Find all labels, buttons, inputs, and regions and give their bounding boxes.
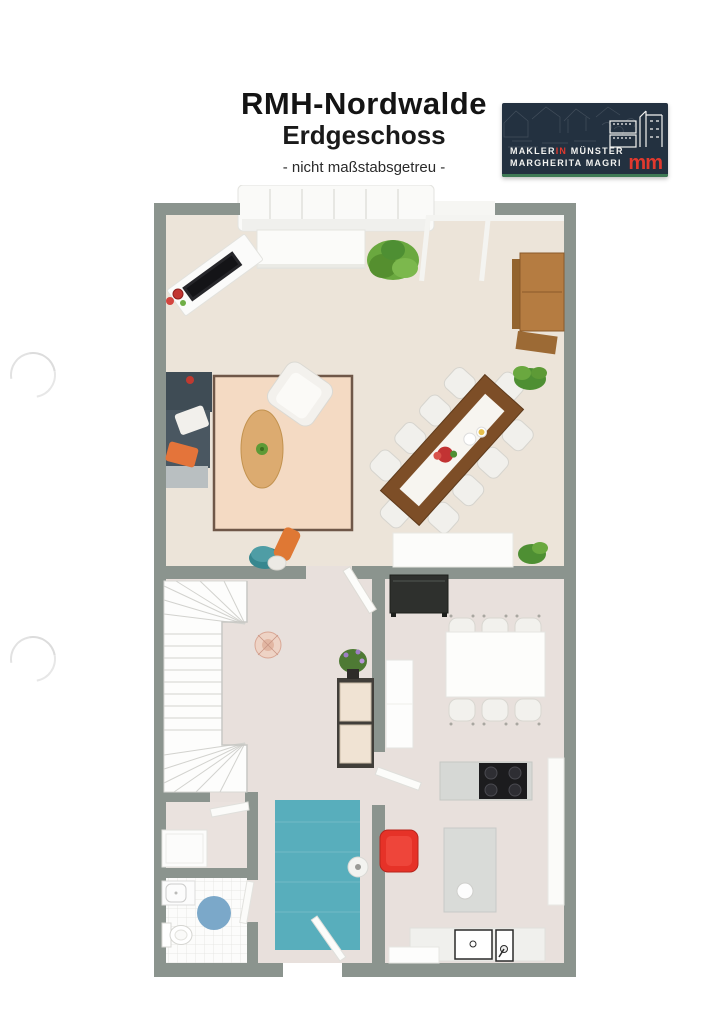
logo-line2: MARGHERITA MAGRI (510, 157, 624, 169)
title-block: RMH-Nordwalde Erdgeschoss - nicht maßsta… (214, 88, 514, 176)
island-sink (457, 883, 473, 899)
bench (389, 947, 439, 963)
page-subtitle: Erdgeschoss (214, 122, 514, 148)
kitchen-dining-set (446, 615, 545, 726)
punch-hole-artifact (1, 343, 65, 407)
kitchen-counter (440, 762, 532, 800)
plant-large (367, 240, 419, 280)
sideboard-bottom (393, 533, 513, 567)
logo-line1-accent: IN (556, 146, 567, 156)
sink-counter (389, 928, 545, 963)
page-title: RMH-Nordwalde (214, 88, 514, 119)
floorplan (150, 185, 580, 987)
punch-hole-artifact (1, 627, 65, 691)
washing-machine (162, 830, 207, 867)
terrace-sofa (238, 185, 434, 231)
kitchen-island (444, 828, 496, 912)
red-vase (173, 289, 183, 299)
bath-rug (197, 896, 231, 930)
red-armchair (380, 830, 418, 872)
white-stool (268, 556, 286, 570)
green-deco (180, 300, 186, 306)
broker-logo: MAKLERIN MÜNSTER MARGHERITA MAGRI mm (502, 103, 668, 177)
logo-wordmark: MAKLERIN MÜNSTER MARGHERITA MAGRI (510, 145, 624, 169)
black-console (390, 575, 448, 617)
red-vase (166, 297, 174, 305)
red-pillow (186, 376, 194, 384)
wall-counter (548, 758, 564, 905)
logo-underline (502, 174, 668, 177)
scale-note: - nicht maßstabsgetreu - (214, 159, 514, 176)
floorplan-svg (150, 185, 580, 987)
floor-lamp (348, 857, 368, 877)
logo-line1: MAKLERIN MÜNSTER (510, 145, 624, 157)
washbasin (162, 881, 195, 905)
wooden-cabinet (512, 253, 564, 354)
sink-basin (455, 930, 492, 959)
scanned-floorplan-page: { "header": { "title": "RMH-Nordwalde", … (0, 0, 721, 1024)
white-dining-table (446, 632, 545, 697)
tall-cabinet (386, 660, 413, 748)
coffee-table (241, 410, 283, 488)
logo-monogram: mm (628, 153, 662, 173)
sideboard-top (257, 230, 365, 269)
corner-sofa (165, 372, 212, 488)
hall-ornament (255, 632, 281, 658)
